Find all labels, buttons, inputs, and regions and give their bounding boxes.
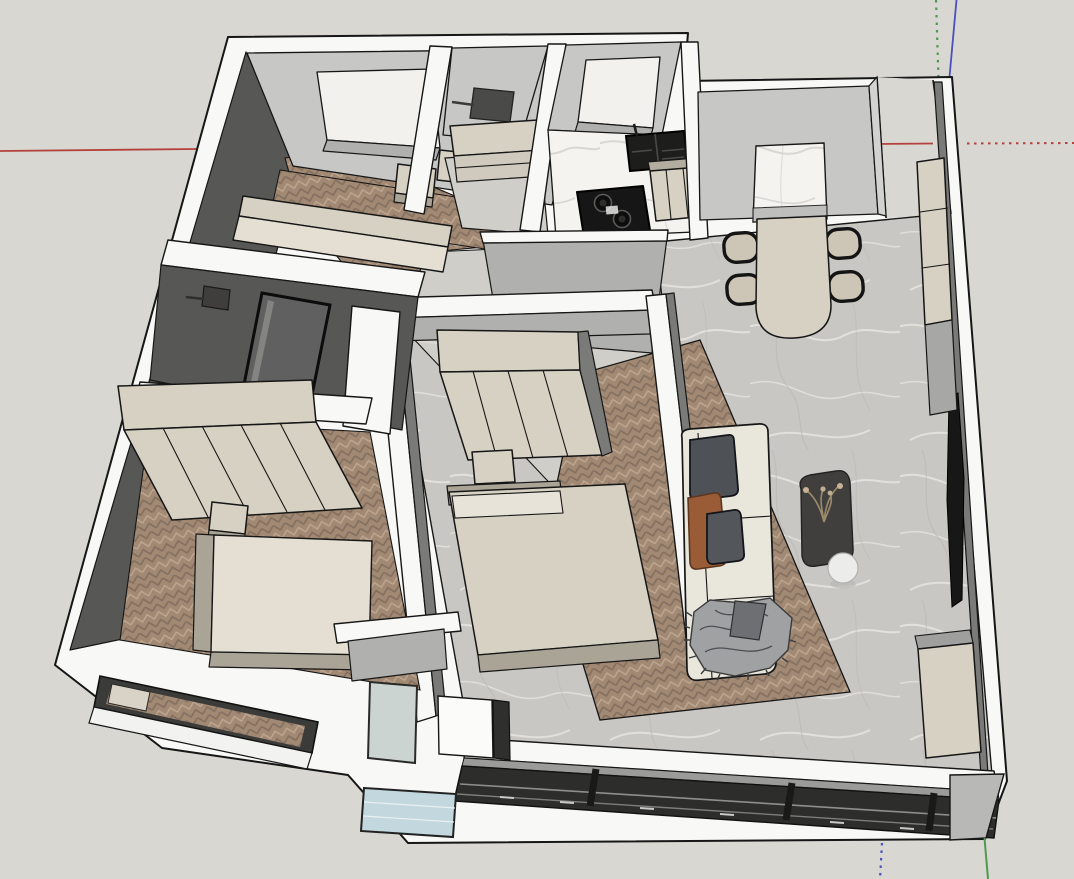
apartment-model[interactable] [55, 33, 1007, 843]
red-axis-solid-mid [875, 144, 933, 145]
balcony-pillar [438, 696, 493, 758]
wall-top-band [480, 230, 668, 243]
pillow-dark-2 [707, 510, 744, 564]
burner-center [600, 200, 607, 207]
wardrobe-top [437, 330, 580, 372]
pillow-dark [690, 435, 738, 500]
burner-center [619, 216, 626, 223]
bed-side [209, 652, 369, 670]
wall-fixture [202, 286, 230, 310]
dining-chair[interactable] [828, 271, 864, 302]
door-gap [493, 700, 510, 760]
coffee-table[interactable] [800, 471, 853, 567]
dining-chair[interactable] [825, 228, 861, 259]
cooktop[interactable] [577, 186, 650, 237]
cooktop-glass [606, 205, 619, 214]
dining-table[interactable] [756, 216, 831, 338]
dining-chair[interactable] [723, 232, 759, 263]
corner-window-glass [368, 682, 417, 763]
sideboard[interactable] [918, 643, 981, 758]
cabinet-lower [925, 320, 957, 415]
balcony-window-glass[interactable] [361, 788, 456, 837]
nightstand[interactable] [209, 502, 248, 534]
3d-canvas[interactable] [0, 0, 1074, 879]
side-table[interactable] [828, 553, 858, 583]
throw-pillow [730, 601, 766, 640]
kitchen-window [578, 57, 660, 128]
model-viewport[interactable] [0, 0, 1074, 879]
shower-head-panel [470, 88, 514, 122]
bed-pillows [452, 491, 563, 518]
nightstand[interactable] [472, 450, 515, 484]
